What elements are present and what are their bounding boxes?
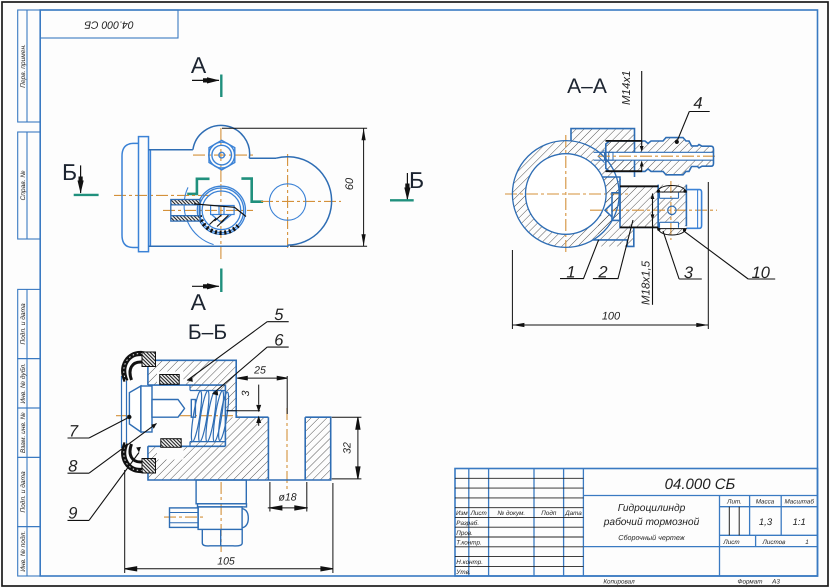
- svg-text:9: 9: [68, 505, 77, 523]
- svg-text:Лист: Лист: [470, 510, 487, 517]
- svg-text:Утв.: Утв.: [455, 569, 470, 576]
- svg-text:1: 1: [805, 539, 809, 546]
- svg-text:Инв. № дубл.: Инв. № дубл.: [20, 363, 27, 404]
- svg-text:2: 2: [597, 264, 607, 282]
- svg-text:Перв. примен.: Перв. примен.: [20, 44, 27, 88]
- svg-text:Б: Б: [409, 167, 424, 193]
- svg-text:ø18: ø18: [278, 492, 296, 504]
- svg-text:3: 3: [684, 264, 694, 282]
- svg-text:100: 100: [602, 311, 621, 323]
- svg-text:№ докум.: № докум.: [497, 510, 525, 517]
- svg-text:1: 1: [566, 264, 575, 282]
- svg-text:А: А: [191, 52, 207, 78]
- svg-text:8: 8: [68, 458, 78, 476]
- svg-text:Справ. №: Справ. №: [20, 171, 27, 201]
- svg-text:А–А: А–А: [567, 75, 607, 98]
- svg-text:Масса: Масса: [756, 499, 775, 506]
- svg-text:7: 7: [69, 423, 79, 441]
- svg-text:Гидроцилиндр: Гидроцилиндр: [618, 503, 686, 514]
- svg-text:04.000 СБ: 04.000 СБ: [665, 476, 736, 493]
- svg-text:А3: А3: [771, 579, 780, 586]
- svg-text:5: 5: [274, 306, 284, 324]
- svg-text:М14х1: М14х1: [621, 70, 633, 105]
- svg-text:3: 3: [240, 390, 252, 396]
- svg-text:6: 6: [274, 332, 284, 350]
- svg-text:Т.контр.: Т.контр.: [456, 540, 481, 547]
- svg-text:Дата: Дата: [564, 510, 582, 517]
- svg-text:Разраб.: Разраб.: [456, 520, 479, 527]
- svg-text:4: 4: [693, 95, 702, 113]
- svg-text:32: 32: [342, 442, 354, 454]
- svg-text:25: 25: [253, 365, 266, 377]
- svg-text:Подп. и дата: Подп. и дата: [20, 303, 27, 345]
- svg-text:Масштаб: Масштаб: [784, 499, 814, 506]
- svg-text:Н.контр.: Н.контр.: [456, 559, 483, 566]
- svg-text:Изм: Изм: [456, 510, 468, 517]
- svg-text:1,3: 1,3: [759, 517, 773, 528]
- svg-text:А: А: [191, 289, 207, 315]
- svg-text:105: 105: [217, 556, 235, 568]
- svg-text:Лист: Лист: [722, 539, 739, 546]
- svg-text:Сборочный чертеж: Сборочный чертеж: [618, 533, 685, 542]
- svg-text:Взам. инв. №: Взам. инв. №: [20, 412, 27, 453]
- svg-text:Листов: Листов: [762, 539, 787, 546]
- svg-text:Инв. № подл.: Инв. № подл.: [20, 531, 27, 572]
- svg-text:04.000 СБ: 04.000 СБ: [84, 19, 134, 31]
- svg-text:Лит.: Лит.: [726, 499, 742, 506]
- svg-text:Пров.: Пров.: [456, 530, 473, 537]
- svg-text:Подп: Подп: [541, 510, 557, 517]
- svg-text:10: 10: [752, 264, 771, 282]
- svg-text:рабочий тормозной: рабочий тормозной: [603, 517, 700, 528]
- svg-text:60: 60: [344, 177, 356, 190]
- svg-text:М18х1,5: М18х1,5: [641, 260, 653, 305]
- svg-text:Формат: Формат: [737, 579, 762, 586]
- svg-text:Б: Б: [62, 159, 77, 185]
- svg-text:Б–Б: Б–Б: [188, 321, 227, 344]
- svg-text:1:1: 1:1: [793, 517, 806, 528]
- svg-text:Копировал: Копировал: [603, 579, 635, 586]
- svg-text:Подп. и дата: Подп. и дата: [20, 471, 27, 513]
